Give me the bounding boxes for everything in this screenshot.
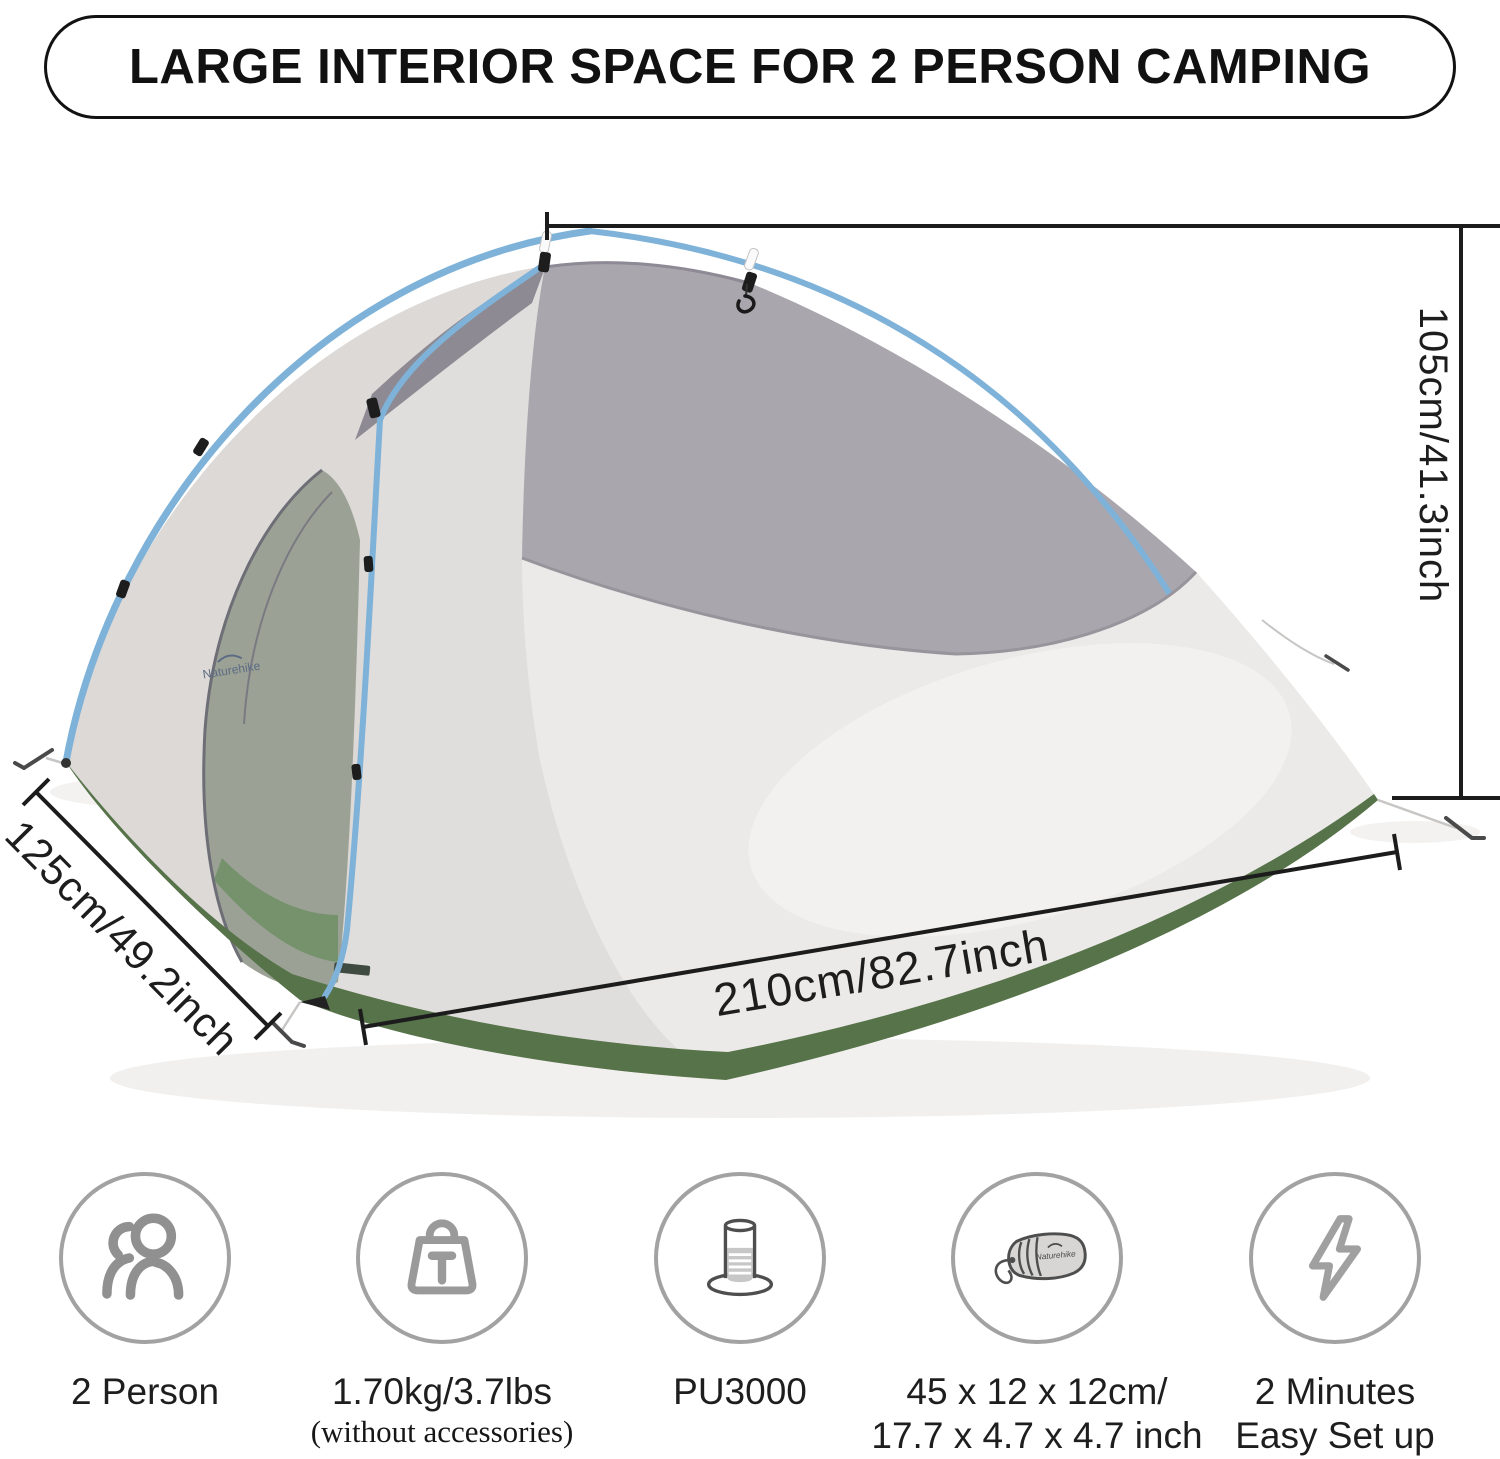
tent-product-infographic: LARGE INTERIOR SPACE FOR 2 PERSON CAMPIN… (0, 0, 1500, 1459)
stake-front-icon (272, 1022, 304, 1046)
height-dimension-label: 105cm/41.3inch (1411, 307, 1455, 603)
tent-scene-svg: Naturehike (0, 0, 1500, 1459)
tent-illustration: Naturehike (15, 230, 1484, 1080)
